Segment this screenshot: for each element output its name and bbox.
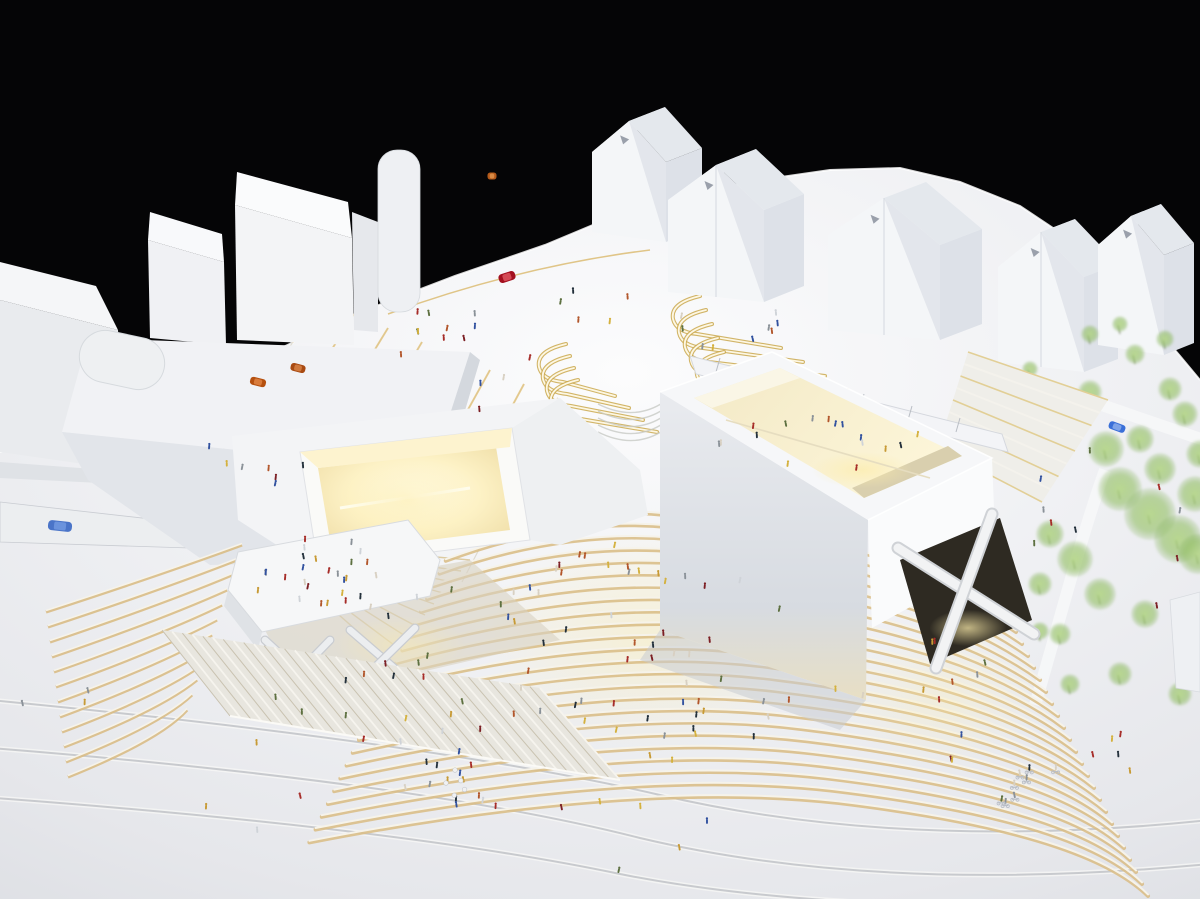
round-tower [378,150,420,312]
mini-figure [1033,540,1035,547]
mini-figure [752,733,754,740]
mini-figure [931,638,933,645]
mini-figure [304,536,307,543]
mini-figure [682,699,684,706]
orange-car-3 [488,173,497,180]
mini-figure [692,725,694,732]
mini-figure [83,699,86,706]
mini-figure [500,601,502,608]
mini-figure [1089,447,1091,454]
mini-figure [706,817,708,824]
model-scene-canvas [0,0,1200,899]
mini-figure [512,589,514,596]
mini-figure [671,756,673,763]
mini-figure [417,328,419,335]
mini-figure [479,380,481,387]
mini-figure [558,561,560,568]
mini-figure [537,589,539,596]
mini-figure [834,685,836,692]
mini-figure [960,731,962,738]
architectural-model-photo [0,0,1200,899]
mini-figure [479,725,481,732]
mini-figure [343,576,345,583]
mini-figure [520,684,522,691]
mini-figure [422,673,424,680]
